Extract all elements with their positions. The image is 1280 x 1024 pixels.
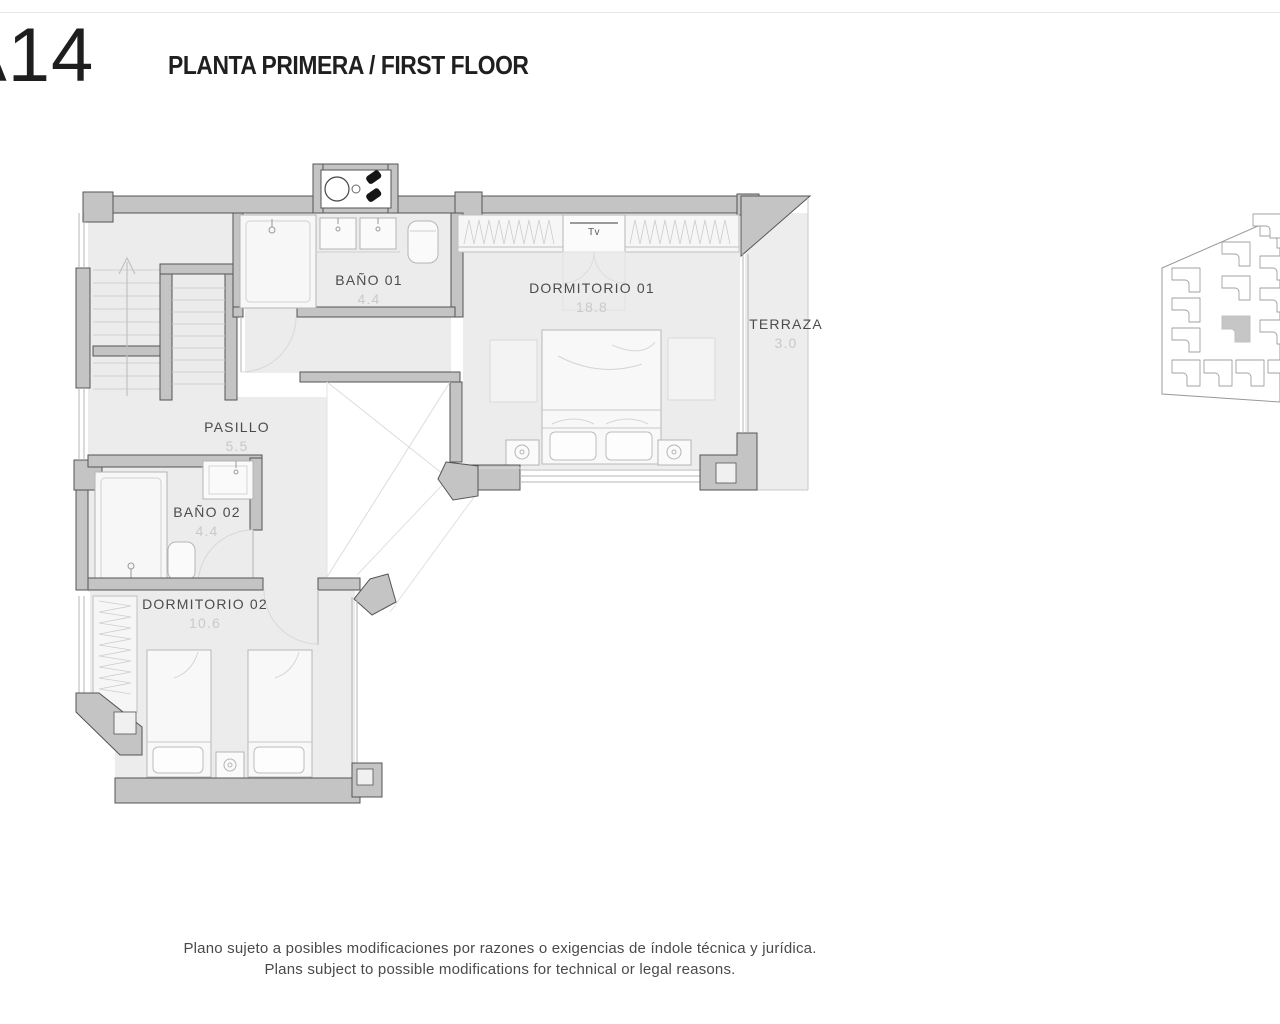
room-label-bano-02: BAÑO 02 4.4 — [173, 504, 241, 539]
single-bed — [147, 650, 211, 777]
pillow — [254, 747, 304, 773]
room-label-dormitorio-01: DORMITORIO 01 18.8 — [529, 280, 655, 315]
page: A14 PLANTA PRIMERA / FIRST FLOOR — [0, 0, 1280, 1024]
pillow — [550, 432, 596, 460]
washer-icon — [325, 177, 349, 201]
laundry-niche — [321, 169, 391, 208]
wall-arrow — [438, 462, 478, 500]
toilet-icon — [408, 221, 438, 263]
single-bed — [248, 650, 312, 777]
window — [520, 470, 700, 482]
pillow — [153, 747, 203, 773]
room-label-bano-01: BAÑO 01 4.4 — [335, 272, 403, 307]
double-bed — [542, 330, 661, 464]
disclaimer-line-es: Plano sujeto a posibles modificaciones p… — [183, 938, 816, 959]
disclaimer: Plano sujeto a posibles modificaciones p… — [183, 938, 816, 980]
sink-icon — [203, 461, 253, 499]
room-label-pasillo: PASILLO 5.5 — [204, 419, 270, 454]
tv-label: Tv — [588, 227, 600, 238]
bedside-rug — [668, 338, 715, 400]
room-label-dormitorio-02: DORMITORIO 02 10.6 — [142, 596, 268, 631]
key-plan — [1162, 214, 1280, 402]
shower-icon — [240, 215, 316, 308]
shower-icon — [95, 472, 167, 588]
disclaimer-line-en: Plans subject to possible modifications … — [183, 959, 816, 980]
nightstand — [216, 752, 244, 778]
room-label-terraza: TERRAZA 3.0 — [749, 316, 823, 351]
bedside-rug — [490, 340, 537, 402]
pillow — [606, 432, 652, 460]
